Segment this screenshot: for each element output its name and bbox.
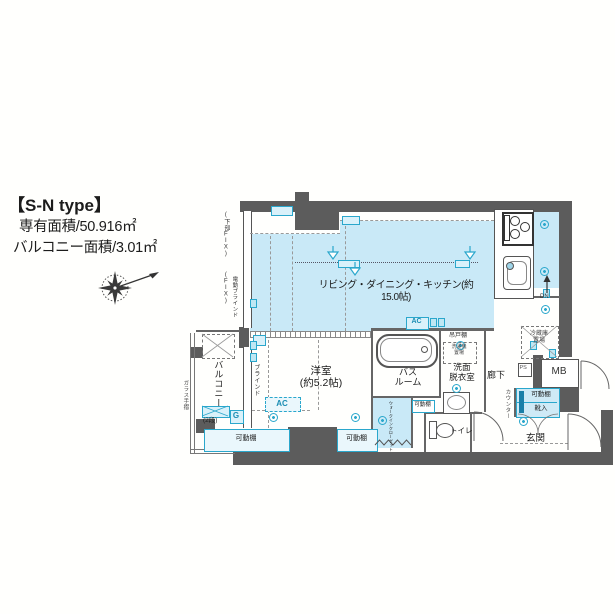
toilet-label: トイレ xyxy=(450,427,473,436)
bathtub-drain xyxy=(421,346,428,353)
kitchen-faucet xyxy=(506,262,514,270)
counter-label: カウンター xyxy=(504,389,510,419)
ac-bedroom-label: AC xyxy=(265,399,299,408)
sliding-door-track xyxy=(250,331,371,338)
outlet-icon xyxy=(549,349,556,358)
ceiling-light-track-line xyxy=(295,262,478,263)
plan-title: 【S-N type】 xyxy=(8,196,111,216)
downlight-icon xyxy=(452,384,461,393)
switch-icon xyxy=(250,353,257,362)
mb-door xyxy=(581,361,609,389)
ldk-west-window xyxy=(243,211,252,328)
washer-label: 洗濯機 置場 xyxy=(443,345,475,357)
glass-rail-label: ガラス手摺 xyxy=(182,380,188,410)
wall-right-lower xyxy=(601,410,613,456)
downlight-icon xyxy=(541,305,550,314)
downlight-icon xyxy=(351,413,360,422)
equipment-tag xyxy=(342,216,360,225)
guide-line xyxy=(270,236,271,331)
bedroom-label: 洋室 (約5.2帖) xyxy=(291,365,351,389)
shelf-left-label: 可動棚 xyxy=(204,435,288,443)
two-tier-label: (2段) xyxy=(203,417,217,424)
wall-balcony-top xyxy=(196,330,240,332)
exclusive-area: 専有面積/50.916㎡ xyxy=(19,219,136,236)
balcony-label: バルコニー xyxy=(213,360,223,410)
hanging-cupboard-label: 吊戸棚 xyxy=(449,333,467,340)
wall-bath-wash-divider xyxy=(439,330,441,398)
wall-top-step xyxy=(295,211,339,230)
washroom-label: 洗面 脱衣室 xyxy=(445,363,479,383)
wic-label: ウォークインクローゼット xyxy=(388,401,393,451)
stove-grill xyxy=(504,215,510,241)
balcony-area: バルコニー面積/3.01㎡ xyxy=(13,240,157,257)
bathroom-label: バス ルーム xyxy=(388,367,428,388)
stove-burner xyxy=(520,222,530,232)
wall-bath-bottom xyxy=(371,396,440,398)
mb-label: MB xyxy=(541,366,577,378)
ldk-floor-upper xyxy=(340,221,494,235)
stove-burner xyxy=(510,216,520,226)
shoe-shelf-label: 可動棚 xyxy=(524,391,558,398)
guide-line xyxy=(345,226,346,331)
fridge-label: 冷蔵庫 置場 xyxy=(521,331,557,345)
ps-label: PS xyxy=(520,365,527,371)
fix-lower-label: (下部FIX) xyxy=(222,212,229,258)
wall-wash-east xyxy=(484,330,486,412)
ldk-label: リビング・ダイニング・キッチン(約15.0帖) xyxy=(318,280,474,303)
wall-window-junction xyxy=(239,327,249,348)
electric-blind-label: 電動ブラインド xyxy=(231,276,237,318)
floorplan-page: { "header": { "title": "【S-N type】", "ar… xyxy=(0,0,615,614)
balcony-hatch-box xyxy=(202,334,235,359)
guide-line xyxy=(250,233,340,234)
switch-icon xyxy=(250,341,257,350)
shelf-right-label: 可動棚 xyxy=(337,435,376,443)
guide-line xyxy=(292,236,293,331)
guide-line xyxy=(340,220,494,221)
switch-icon xyxy=(438,318,445,327)
switch-icon xyxy=(250,299,257,308)
compass-icon xyxy=(98,271,159,305)
blind-label: ブラインド xyxy=(252,364,259,397)
wall-right-upper xyxy=(559,201,572,357)
wall-top-tab xyxy=(295,192,309,202)
g-label: G xyxy=(230,411,242,420)
downlight-icon xyxy=(540,267,549,276)
downlight-icon xyxy=(519,417,528,426)
washroom-door xyxy=(474,412,503,441)
shoes-label: 靴入 xyxy=(524,405,558,412)
downlight-icon xyxy=(540,220,549,229)
dn-label: DN xyxy=(540,294,549,301)
fix-label: (FIX) xyxy=(222,272,229,305)
vanity-basin xyxy=(447,395,466,410)
light-track-segment xyxy=(338,260,360,268)
wall-bottom xyxy=(233,452,613,465)
wall-bottom-notch xyxy=(288,427,337,453)
ac-top-label: AC xyxy=(406,318,427,326)
stove-burner xyxy=(510,229,520,239)
balcony-glass-rail xyxy=(190,333,195,453)
wall-bath-top xyxy=(371,328,494,331)
entrance-door xyxy=(568,414,601,450)
light-track-segment xyxy=(455,260,470,268)
wic-shelf-label: 可動棚 xyxy=(412,402,433,408)
switch-icon xyxy=(430,318,437,327)
downlight-icon xyxy=(378,416,387,425)
equipment-tag xyxy=(271,206,293,216)
entrance-label: 玄関 xyxy=(526,434,545,445)
corridor-label: 廊下 xyxy=(487,370,505,380)
downlight-icon xyxy=(269,413,278,422)
wall-toilet-west xyxy=(424,412,426,452)
